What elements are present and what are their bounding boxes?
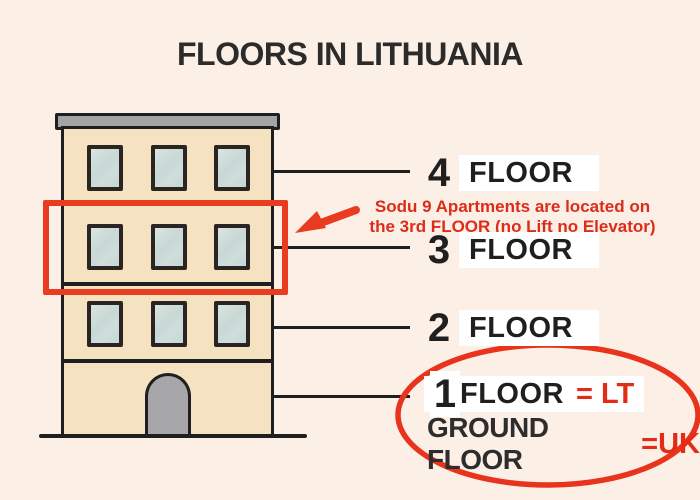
floor-label-2: 2 FLOOR <box>424 305 599 351</box>
floor-label-3: 3 FLOOR <box>424 227 599 273</box>
window <box>151 145 187 191</box>
floor-number: 1 <box>430 371 460 417</box>
floor-label-4: 4 FLOOR <box>424 150 599 196</box>
floor-connector-line <box>273 395 410 398</box>
window <box>87 145 123 191</box>
floor-label-box: FLOOR <box>459 310 599 346</box>
floor-label-box: 1 FLOOR = LT <box>424 376 644 412</box>
floor-connector-line <box>273 246 410 249</box>
floor-word: FLOOR <box>460 380 564 409</box>
floor-connector-line <box>273 170 410 173</box>
lt-equivalence-label: = LT <box>576 380 634 409</box>
window <box>151 301 187 347</box>
ground-floor-word: GROUND FLOOR <box>427 412 632 476</box>
window <box>214 145 250 191</box>
infographic-canvas: FLOORS IN LITHUANIA Sod <box>0 0 700 500</box>
window <box>214 301 250 347</box>
floor-word: FLOOR <box>469 159 573 188</box>
page-title: FLOORS IN LITHUANIA <box>0 36 700 73</box>
floor-number: 3 <box>424 227 454 273</box>
floor-label-box: FLOOR <box>459 232 599 268</box>
floor-word: FLOOR <box>469 314 573 343</box>
floor-connector-line <box>273 326 410 329</box>
floor-label-1: 1 FLOOR = LT <box>424 371 644 417</box>
floor-number: 4 <box>424 150 454 196</box>
ground-line <box>39 434 307 438</box>
window <box>87 301 123 347</box>
building-door <box>145 373 191 438</box>
highlight-rectangle <box>43 200 288 295</box>
floor-divider <box>62 359 273 363</box>
ground-floor-label: GROUND FLOOR =UK <box>427 412 700 476</box>
floor-number: 2 <box>424 305 454 351</box>
annotation-line-1: Sodu 9 Apartments are located on <box>340 197 685 217</box>
floor-word: FLOOR <box>469 236 573 265</box>
uk-equivalence-label: =UK <box>641 428 700 461</box>
floor-label-box: FLOOR <box>459 155 599 191</box>
